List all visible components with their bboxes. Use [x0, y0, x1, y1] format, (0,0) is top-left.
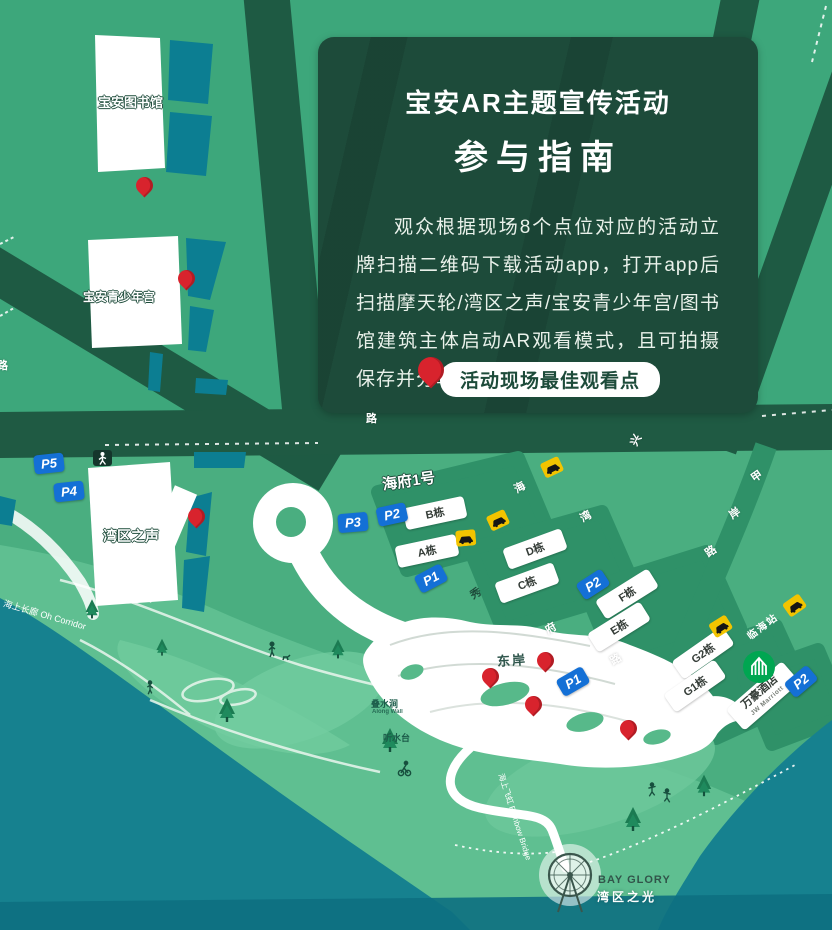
info-panel: 宝安AR主题宣传活动 参与指南 观众根据现场8个点位对应的活动立牌扫描二维码下载… — [318, 37, 758, 413]
label-bay-glory-cn: 湾区之光 — [597, 888, 657, 905]
road-label-band: 路 — [366, 410, 377, 426]
badge-label: 活动现场最佳观看点 — [440, 362, 660, 397]
label-water-feature-1-en: Along Wall — [372, 709, 403, 715]
road-label-left: 路 — [0, 357, 8, 373]
label-water-feature-2: 听水台 — [383, 731, 410, 744]
pedestrian-icon — [93, 450, 112, 471]
panel-subtitle: 参与指南 — [318, 130, 758, 179]
parking-sign-p5: P5 — [33, 452, 65, 474]
label-library: 宝安图书馆 — [98, 92, 163, 111]
taxi-icon — [455, 529, 477, 552]
parking-sign-p4: P4 — [53, 480, 85, 502]
label-youth-palace: 宝安青少年宫 — [83, 288, 155, 305]
label-bay-voice: 湾区之声 — [103, 526, 159, 546]
label-bay-glory-en: BAY GLORY — [598, 874, 671, 886]
metro-icon — [742, 650, 776, 689]
best-viewpoint-badge: 活动现场最佳观看点 — [318, 362, 758, 397]
label-east-bank: 东岸 — [496, 649, 527, 670]
map-canvas: 宝安AR主题宣传活动 参与指南 观众根据现场8个点位对应的活动立牌扫描二维码下载… — [0, 0, 832, 930]
panel-title: 宝安AR主题宣传活动 — [318, 83, 758, 120]
location-pin-icon — [416, 353, 446, 393]
parking-sign-p3: P3 — [337, 512, 368, 534]
